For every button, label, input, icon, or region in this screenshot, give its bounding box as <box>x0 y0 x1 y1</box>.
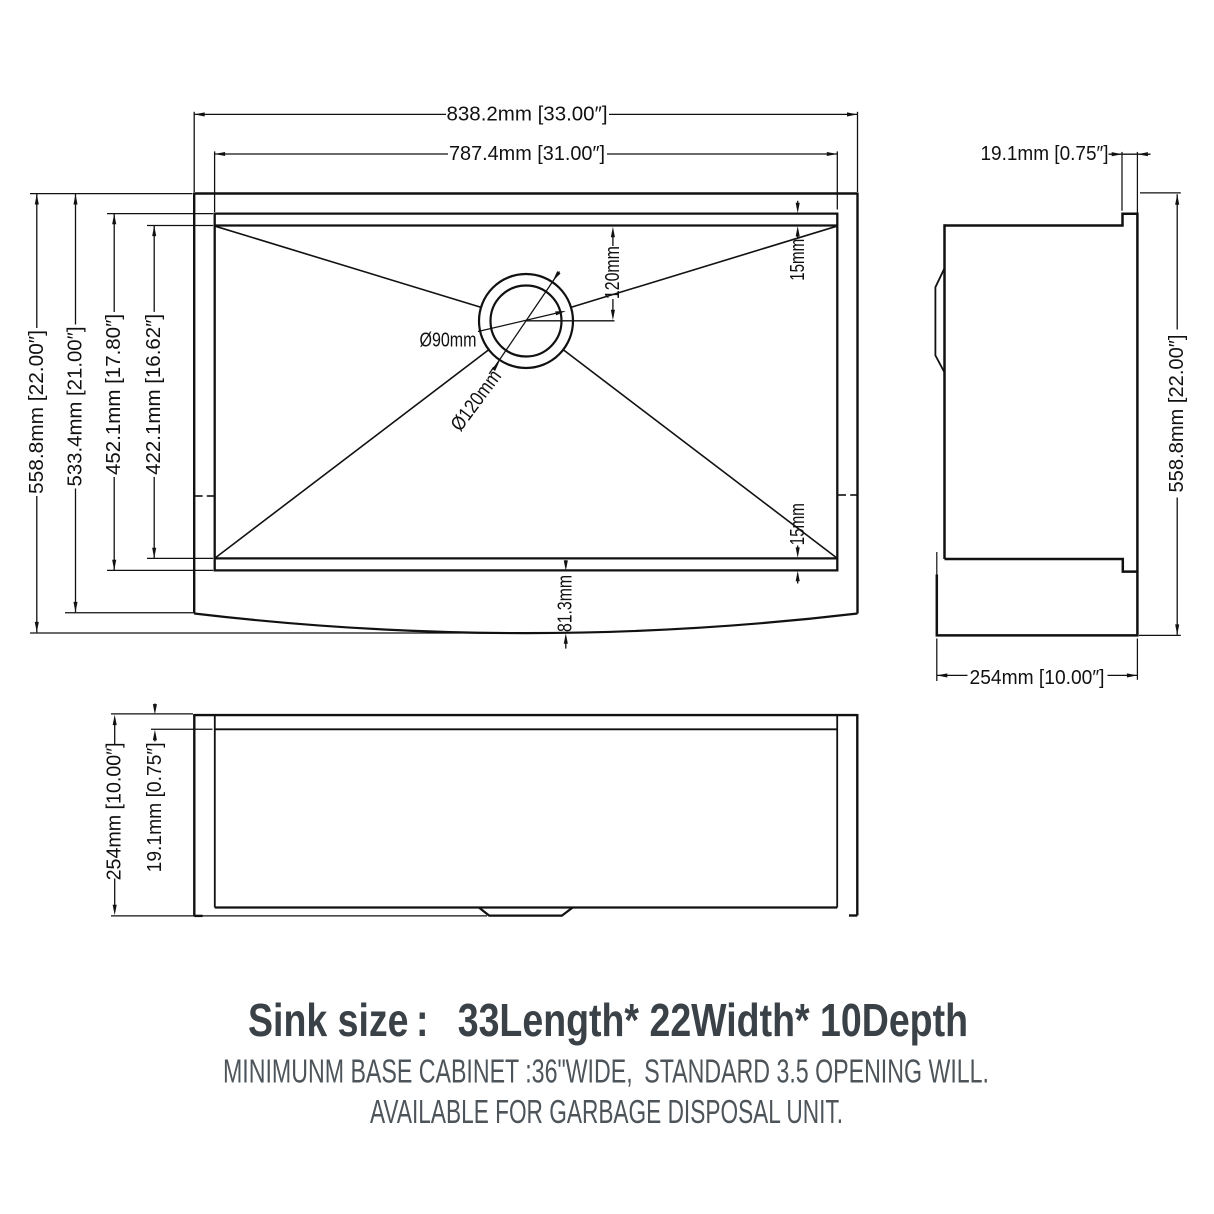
svg-text:452.1mm [17.80″]: 452.1mm [17.80″] <box>103 314 125 475</box>
svg-text:422.1mm [16.62″]: 422.1mm [16.62″] <box>143 314 165 475</box>
svg-text:Ø90mm: Ø90mm <box>420 330 477 352</box>
svg-text:558.8mm [22.00″]: 558.8mm [22.00″] <box>1166 335 1188 493</box>
svg-text:558.8mm [22.00″]: 558.8mm [22.00″] <box>26 330 48 494</box>
svg-text:838.2mm [33.00″]: 838.2mm [33.00″] <box>447 103 608 125</box>
svg-text:533.4mm [21.00″]: 533.4mm [21.00″] <box>65 327 87 487</box>
svg-text:19.1mm [0.75″]: 19.1mm [0.75″] <box>981 143 1109 165</box>
svg-text:254mm [10.00″]: 254mm [10.00″] <box>104 742 126 880</box>
svg-text:MINIMUNM BASE CABINET :36"WIDE: MINIMUNM BASE CABINET :36"WIDE, STANDARD… <box>223 1053 989 1090</box>
svg-text:AVAILABLE FOR GARBAGE DISPOSAL: AVAILABLE FOR GARBAGE DISPOSAL UNIT. <box>370 1093 843 1130</box>
svg-text:Sink size : 33Length* 22Width: Sink size : 33Length* 22Width* 10Depth <box>248 994 968 1046</box>
svg-text:120mm: 120mm <box>602 246 624 299</box>
svg-text:254mm [10.00″]: 254mm [10.00″] <box>970 667 1105 689</box>
svg-text:19.1mm [0.75″]: 19.1mm [0.75″] <box>144 742 166 872</box>
svg-text:787.4mm [31.00″]: 787.4mm [31.00″] <box>449 143 605 165</box>
svg-text:15mm: 15mm <box>787 239 809 281</box>
svg-text:81.3mm: 81.3mm <box>555 575 577 632</box>
svg-text:15mm: 15mm <box>787 503 809 545</box>
